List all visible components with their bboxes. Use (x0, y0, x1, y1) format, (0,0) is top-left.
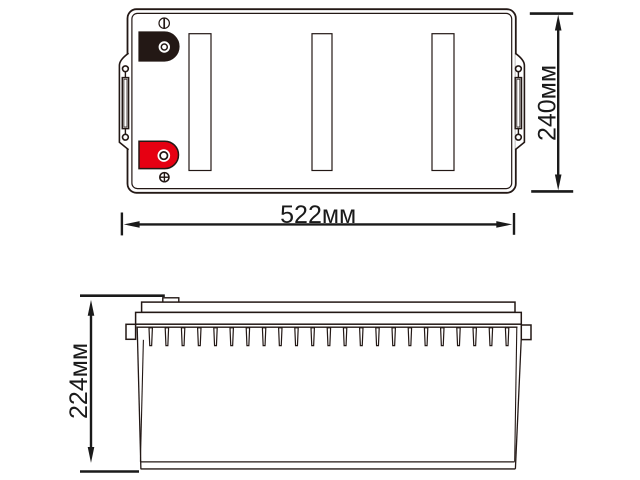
svg-text:240мм: 240мм (534, 65, 562, 141)
svg-text:522мм: 522мм (280, 201, 356, 229)
svg-text:224мм: 224мм (65, 343, 93, 419)
